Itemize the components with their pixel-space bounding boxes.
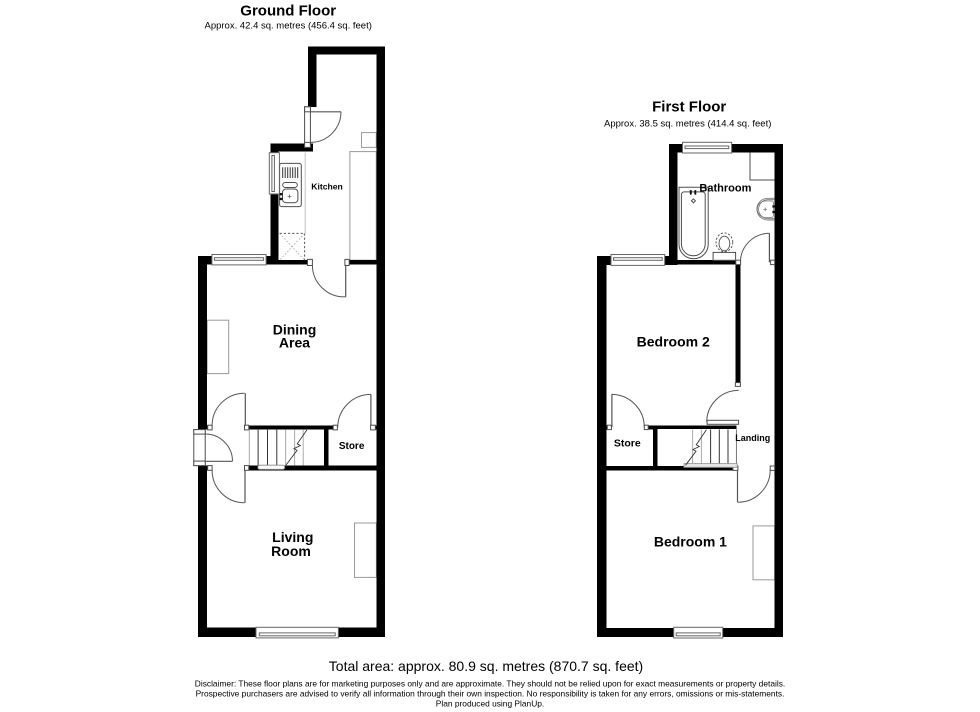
- svg-text:First Floor: First Floor: [652, 99, 726, 116]
- svg-text:Prospective purchasers are adv: Prospective purchasers are advised to ve…: [196, 688, 785, 698]
- svg-text:Bedroom 1: Bedroom 1: [654, 533, 727, 549]
- svg-text:Ground Floor: Ground Floor: [240, 3, 336, 20]
- svg-text:Store: Store: [614, 438, 641, 450]
- svg-text:Bathroom: Bathroom: [699, 182, 751, 194]
- svg-text:Bedroom 2: Bedroom 2: [637, 333, 710, 349]
- svg-text:Landing: Landing: [735, 433, 770, 443]
- svg-text:Plan produced using PlanUp.: Plan produced using PlanUp.: [436, 698, 544, 708]
- svg-text:Kitchen: Kitchen: [311, 181, 343, 191]
- svg-text:Approx. 38.5 sq. metres (414.4: Approx. 38.5 sq. metres (414.4 sq. feet): [604, 118, 771, 129]
- svg-text:Disclaimer: These floor plans: Disclaimer: These floor plans are for ma…: [195, 678, 785, 688]
- svg-text:Store: Store: [339, 441, 365, 452]
- svg-text:Room: Room: [271, 543, 311, 559]
- svg-text:Area: Area: [279, 335, 310, 351]
- svg-text:Total area: approx. 80.9 sq. m: Total area: approx. 80.9 sq. metres (870…: [329, 658, 643, 674]
- svg-text:Approx. 42.4 sq. metres (456.4: Approx. 42.4 sq. metres (456.4 sq. feet): [204, 21, 371, 32]
